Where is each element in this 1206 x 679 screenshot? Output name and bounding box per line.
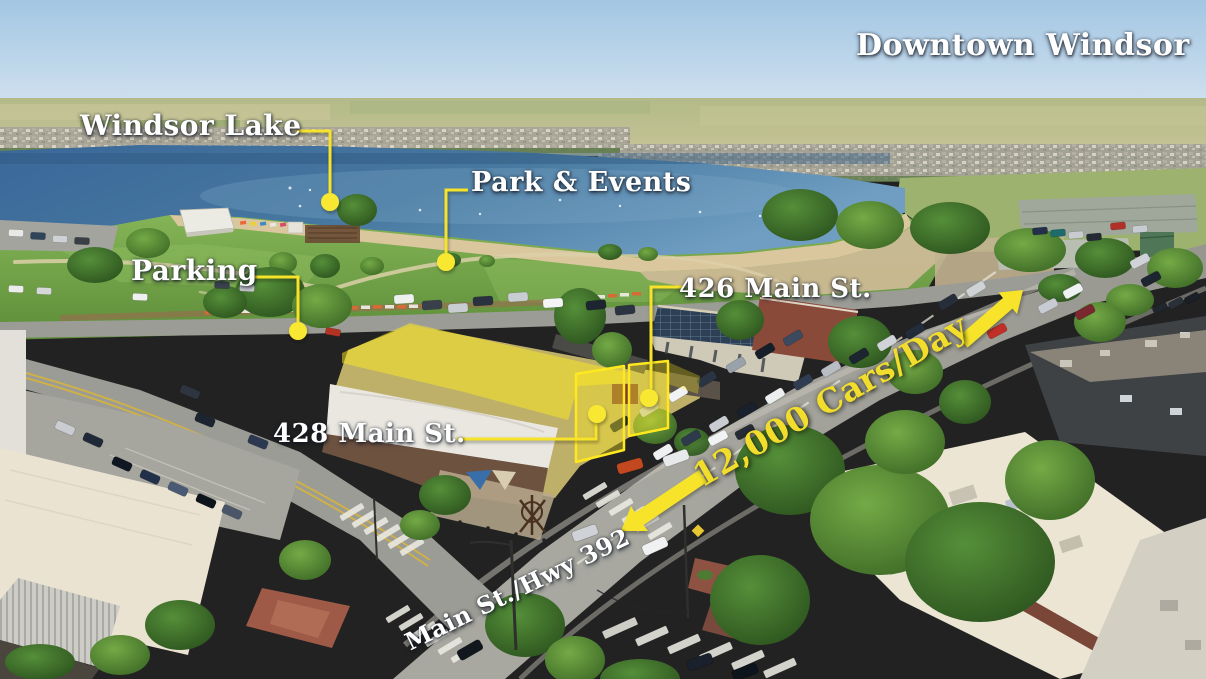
main-428-dot [588, 405, 606, 423]
main-426-label: 426 Main St. [679, 274, 872, 304]
parking-dot [289, 322, 307, 340]
windsor-lake-dot [321, 193, 339, 211]
park-events-dot [437, 253, 455, 271]
highlight-east-wall [668, 362, 700, 394]
downtown-windsor-label: Downtown Windsor [856, 28, 1190, 63]
park-events-line [446, 190, 468, 253]
main-428-label: 428 Main St. [273, 419, 466, 449]
main-426-dot [640, 389, 658, 407]
park-events-label: Park & Events [471, 167, 691, 198]
parking-label: Parking [131, 254, 258, 287]
annotated-aerial-image: Downtown Windsor Windsor Lake Park & Eve… [0, 0, 1206, 679]
windsor-lake-label: Windsor Lake [80, 109, 302, 142]
annotation-overlay [0, 0, 1206, 679]
parking-line [252, 277, 298, 322]
